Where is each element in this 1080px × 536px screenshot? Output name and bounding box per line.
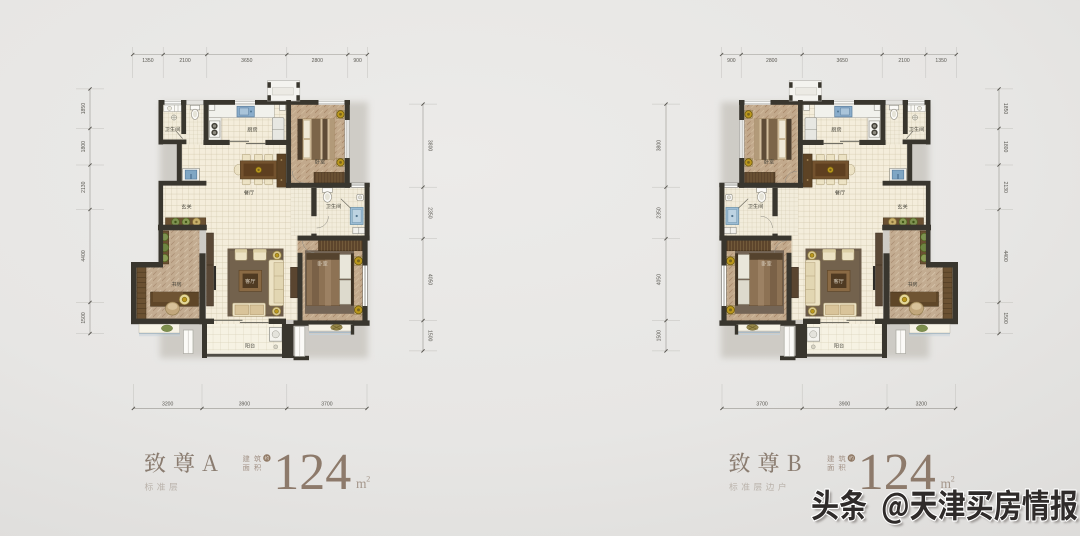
svg-text:900: 900: [353, 58, 362, 64]
svg-text:2100: 2100: [898, 58, 909, 64]
svg-text:1850: 1850: [81, 103, 87, 114]
svg-text:1800: 1800: [1002, 141, 1008, 152]
svg-text:124: 124: [273, 444, 351, 501]
svg-text:3650: 3650: [241, 58, 252, 64]
svg-text:1500: 1500: [1002, 312, 1008, 323]
svg-text:1850: 1850: [1002, 103, 1008, 114]
svg-text:1800: 1800: [81, 141, 87, 152]
svg-text:3700: 3700: [756, 401, 767, 407]
svg-text:3650: 3650: [837, 58, 848, 64]
svg-text:1500: 1500: [427, 330, 433, 341]
svg-text:2: 2: [366, 475, 370, 484]
svg-text:4400: 4400: [1002, 250, 1008, 261]
svg-text:1500: 1500: [656, 330, 662, 341]
svg-text:4050: 4050: [656, 274, 662, 285]
svg-text:1350: 1350: [142, 58, 153, 64]
svg-text:2800: 2800: [312, 58, 323, 64]
svg-text:900: 900: [727, 58, 736, 64]
svg-text:3700: 3700: [321, 401, 332, 407]
svg-text:4400: 4400: [81, 250, 87, 261]
svg-text:2: 2: [951, 475, 955, 484]
svg-text:3800: 3800: [656, 140, 662, 151]
svg-text:4050: 4050: [427, 274, 433, 285]
svg-text:2800: 2800: [766, 58, 777, 64]
svg-text:2350: 2350: [427, 207, 433, 218]
svg-text:2100: 2100: [179, 58, 190, 64]
svg-text:3900: 3900: [239, 401, 250, 407]
svg-text:3900: 3900: [839, 401, 850, 407]
svg-text:2130: 2130: [1002, 182, 1008, 193]
svg-text:2350: 2350: [656, 207, 662, 218]
svg-text:3200: 3200: [916, 401, 927, 407]
svg-text:1350: 1350: [935, 58, 946, 64]
svg-text:2130: 2130: [81, 181, 87, 192]
svg-text:3800: 3800: [427, 140, 433, 151]
svg-text:3200: 3200: [162, 401, 173, 407]
svg-text:1500: 1500: [81, 312, 87, 323]
